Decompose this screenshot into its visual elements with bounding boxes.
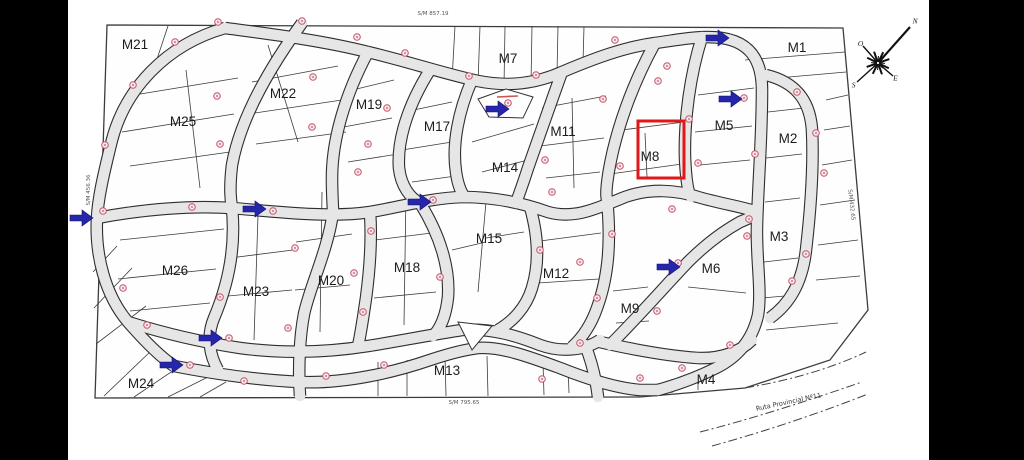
block-label-m8: M8 <box>641 149 660 164</box>
plat-map-svg: M21M25M22M19M17M7M14M11M8M5M1M2M3M26M23M… <box>0 0 1024 460</box>
lot-marker-dot <box>174 41 176 43</box>
lot-marker-dot <box>671 208 673 210</box>
lot-marker-dot <box>796 91 798 93</box>
block-label-m20: M20 <box>318 273 344 288</box>
block-label-m4: M4 <box>697 372 716 387</box>
block-label-m13: M13 <box>434 363 460 378</box>
block-label-m26: M26 <box>162 263 188 278</box>
lot-marker-dot <box>132 84 134 86</box>
compass-rose: NESO <box>852 17 919 90</box>
lot-marker-dot <box>677 262 679 264</box>
compass-label-S: S <box>852 81 856 90</box>
lot-marker-dot <box>666 65 668 67</box>
lot-marker-dot <box>219 296 221 298</box>
compass-label-E: E <box>892 74 898 83</box>
lot-marker-dot <box>353 272 355 274</box>
lot-marker-dot <box>272 210 274 212</box>
block-label-m7: M7 <box>499 51 518 66</box>
compass-label-N: N <box>912 17 919 26</box>
lot-marker-dot <box>539 249 541 251</box>
lot-marker-dot <box>743 97 745 99</box>
lot-marker-dot <box>356 36 358 38</box>
lot-marker-dot <box>619 165 621 167</box>
lot-marker-dot <box>468 75 470 77</box>
boundary-measure-label: S/M 456.36 <box>86 174 92 206</box>
lot-marker-dot <box>228 337 230 339</box>
lot-marker-dot <box>146 324 148 326</box>
lot-marker-dot <box>579 261 581 263</box>
block-label-m19: M19 <box>356 97 382 112</box>
block-label-m1: M1 <box>788 40 807 55</box>
lot-marker-dot <box>602 98 604 100</box>
lot-marker-dot <box>656 310 658 312</box>
compass-hub-center <box>877 62 879 64</box>
lot-marker-dot <box>216 95 218 97</box>
block-label-m22: M22 <box>270 86 296 101</box>
lot-marker-dot <box>541 378 543 380</box>
lot-marker-dot <box>754 153 756 155</box>
block-label-m23: M23 <box>243 284 269 299</box>
lot-marker-dot <box>122 287 124 289</box>
lot-marker-dot <box>383 364 385 366</box>
lot-marker-dot <box>294 247 296 249</box>
block-label-m12: M12 <box>543 266 569 281</box>
lot-marker-dot <box>189 364 191 366</box>
lot-marker-dot <box>404 52 406 54</box>
lot-marker-dot <box>688 118 690 120</box>
road-label-ruta-provincial: Ruta Provincial Nº11 <box>755 391 822 413</box>
compass-ray-N <box>878 27 910 63</box>
lot-marker-dot <box>611 233 613 235</box>
lot-marker-dot <box>362 311 364 313</box>
lot-marker-dot <box>312 76 314 78</box>
block-label-m9: M9 <box>621 301 640 316</box>
lot-marker-dot <box>551 191 553 193</box>
boundary-measure-label: S/M 795.65 <box>448 400 480 406</box>
lot-marker-dot <box>729 344 731 346</box>
lot-marker-dot <box>311 126 313 128</box>
block-label-m14: M14 <box>492 160 519 175</box>
block-label-m21: M21 <box>122 37 148 52</box>
lot-marker-dot <box>439 276 441 278</box>
lot-marker-dot <box>657 80 659 82</box>
block-label-m6: M6 <box>702 261 721 276</box>
lot-marker-dot <box>104 144 106 146</box>
lot-marker-dot <box>432 199 434 201</box>
block-label-m17: M17 <box>424 119 450 134</box>
lot-marker-dot <box>535 74 537 76</box>
lot-marker-dot <box>219 143 221 145</box>
lot-marker-dot <box>287 327 289 329</box>
lot-marker-dot <box>697 162 699 164</box>
block-label-m24: M24 <box>128 376 155 391</box>
block-label-m5: M5 <box>715 118 734 133</box>
lot-marker-dot <box>596 297 598 299</box>
lot-marker-dot <box>681 367 683 369</box>
lot-marker-dot <box>639 377 641 379</box>
lot-marker-dot <box>386 107 388 109</box>
lot-marker-dot <box>544 159 546 161</box>
lot-marker-dot <box>217 21 219 23</box>
block-label-m18: M18 <box>394 260 420 275</box>
lot-marker-dot <box>507 102 509 104</box>
lot-marker-dot <box>102 210 104 212</box>
block-label-m11: M11 <box>550 124 575 139</box>
block-label-m15: M15 <box>476 231 502 246</box>
entrance-arrow-icon <box>70 210 93 226</box>
lot-marker-dot <box>370 230 372 232</box>
lot-marker-dot <box>748 218 750 220</box>
block-label-m2: M2 <box>779 131 798 146</box>
block-label-m25: M25 <box>170 114 196 129</box>
lot-marker-dot <box>805 253 807 255</box>
lot-marker-dot <box>325 375 327 377</box>
lot-marker-dot <box>815 132 817 134</box>
lot-marker-dot <box>301 20 303 22</box>
boundary-measure-label: S/M 857.19 <box>417 11 449 17</box>
lot-marker-dot <box>791 280 793 282</box>
screenshot-canvas: M21M25M22M19M17M7M14M11M8M5M1M2M3M26M23M… <box>0 0 1024 460</box>
lot-marker-dot <box>614 39 616 41</box>
landmark-tiny-text <box>497 96 518 97</box>
lot-marker-dot <box>357 171 359 173</box>
compass-label-O: O <box>858 39 864 48</box>
lot-marker-dot <box>191 206 193 208</box>
lot-marker-dot <box>579 342 581 344</box>
lot-marker-dot <box>746 235 748 237</box>
lot-marker-dot <box>367 143 369 145</box>
block-label-m3: M3 <box>770 229 789 244</box>
lot-marker-dot <box>823 172 825 174</box>
lot-marker-dot <box>243 380 245 382</box>
